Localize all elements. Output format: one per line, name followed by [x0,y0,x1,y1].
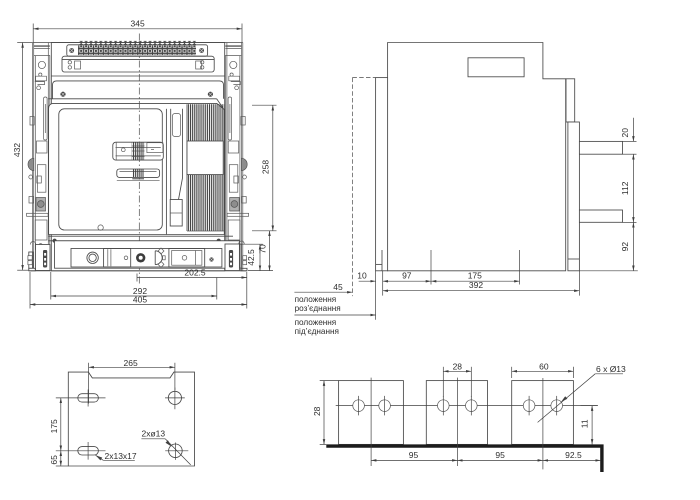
svg-text:70: 70 [257,244,267,254]
svg-text:202.5: 202.5 [184,268,206,278]
svg-text:92: 92 [620,242,630,252]
svg-text:65: 65 [49,455,59,465]
svg-text:2x13x17: 2x13x17 [105,451,137,461]
svg-text:2xø13: 2xø13 [142,429,166,439]
svg-text:95: 95 [409,450,419,460]
svg-text:20: 20 [620,128,630,138]
svg-text:258: 258 [261,160,271,174]
svg-text:432: 432 [12,143,22,157]
svg-text:92.5: 92.5 [565,450,582,460]
svg-text:положення: положення [295,318,337,327]
svg-text:175: 175 [468,270,482,280]
svg-text:6 x Ø13: 6 x Ø13 [596,364,626,374]
svg-text:405: 405 [133,294,147,304]
svg-text:10: 10 [357,270,367,280]
svg-text:28: 28 [453,361,463,371]
svg-text:11: 11 [579,419,589,428]
svg-text:42.5: 42.5 [246,249,256,266]
svg-text:97: 97 [402,270,412,280]
svg-text:роз’єднання: роз’єднання [295,304,341,313]
svg-text:175: 175 [49,419,59,433]
svg-text:28: 28 [312,406,322,416]
svg-text:265: 265 [124,358,138,368]
svg-text:60: 60 [539,361,549,371]
svg-text:392: 392 [469,280,483,290]
svg-text:під’єднання: під’єднання [295,327,339,336]
svg-text:45: 45 [333,282,343,292]
svg-text:95: 95 [495,450,505,460]
svg-text:112: 112 [620,181,630,195]
svg-text:345: 345 [131,19,145,29]
svg-text:положення: положення [295,295,337,304]
